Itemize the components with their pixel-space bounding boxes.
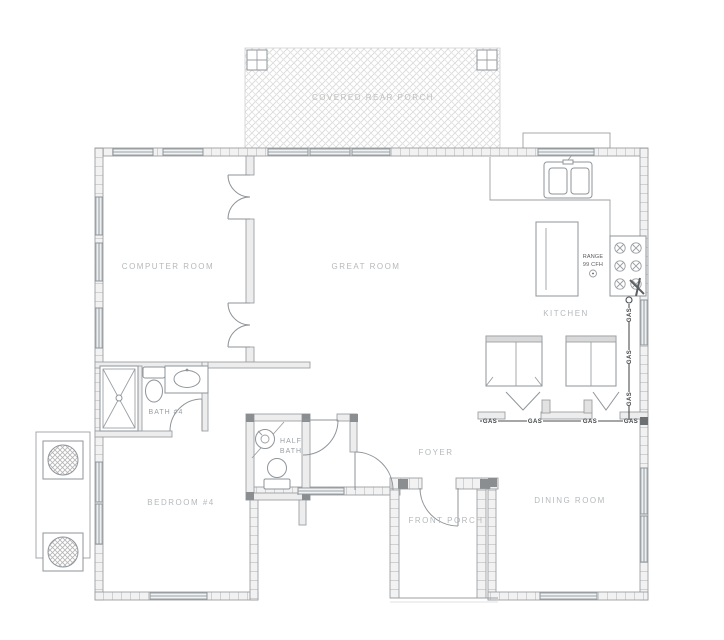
wall-dining-left bbox=[488, 487, 496, 600]
window bbox=[95, 462, 103, 502]
porch-wall-right bbox=[477, 489, 486, 598]
vanity-bath4 bbox=[165, 366, 208, 393]
computer-room-label: COMPUTER ROOM bbox=[122, 262, 214, 271]
gas-label: GAS bbox=[528, 419, 542, 425]
gas-label: GAS bbox=[624, 419, 638, 425]
hvac-unit-2 bbox=[43, 533, 83, 571]
covered-rear-porch-label: COVERED REAR PORCH bbox=[312, 93, 434, 102]
gas-label: GAS bbox=[483, 419, 497, 425]
range: RANGE 99 CFH bbox=[583, 236, 646, 296]
computer-room-double-door-top bbox=[228, 175, 250, 219]
hvac-units bbox=[36, 432, 90, 571]
window bbox=[540, 592, 597, 600]
gas-label: GAS bbox=[627, 350, 633, 364]
window bbox=[640, 516, 648, 562]
gas-label: GAS bbox=[627, 308, 633, 322]
dining-opening-right bbox=[593, 392, 619, 410]
bath4-label: BATH #4 bbox=[149, 409, 184, 416]
foyer-hall-door bbox=[355, 452, 393, 490]
window bbox=[640, 468, 648, 514]
window bbox=[150, 592, 207, 600]
cabinet-right bbox=[566, 336, 616, 386]
kitchen-label: KITCHEN bbox=[543, 309, 589, 318]
window bbox=[95, 308, 103, 348]
range-label-2: 99 CFH bbox=[583, 262, 603, 268]
toilet-bath4 bbox=[143, 367, 165, 402]
half-bath-label-2: BATH bbox=[280, 448, 302, 455]
covered-rear-porch: COVERED REAR PORCH bbox=[245, 48, 500, 148]
window bbox=[538, 148, 594, 156]
kitchen-island bbox=[536, 222, 578, 296]
hvac-unit-1 bbox=[43, 441, 83, 479]
porch-post-left bbox=[247, 50, 267, 70]
range-label-1: RANGE bbox=[583, 254, 604, 260]
window bbox=[268, 148, 308, 156]
window bbox=[298, 487, 344, 495]
front-post-left bbox=[398, 479, 408, 489]
window bbox=[95, 504, 103, 544]
wall-bedroom-right bbox=[250, 495, 258, 600]
dining-opening-left bbox=[506, 392, 540, 410]
window bbox=[95, 243, 103, 281]
window bbox=[113, 148, 153, 156]
half-bath-label-1: HALF bbox=[280, 438, 302, 445]
cabinet-left bbox=[486, 336, 542, 386]
bath4-fixtures bbox=[100, 366, 208, 431]
porch-post-right bbox=[477, 50, 497, 70]
floor-plan-page: COVERED REAR PORCH bbox=[0, 0, 724, 640]
kitchen-window-box bbox=[523, 133, 610, 148]
kitchen-fixtures: RANGE 99 CFH bbox=[486, 155, 646, 386]
window bbox=[640, 300, 648, 345]
interior-walls bbox=[95, 156, 648, 525]
window bbox=[310, 148, 350, 156]
dining-room-label: DINING ROOM bbox=[534, 496, 606, 505]
front-porch bbox=[390, 478, 498, 602]
window bbox=[352, 148, 390, 156]
great-room-label: GREAT ROOM bbox=[332, 262, 401, 271]
kitchen-sink bbox=[544, 155, 592, 198]
gas-label: GAS bbox=[627, 392, 633, 406]
porch-wall-left bbox=[390, 489, 399, 598]
front-porch-label: FRONT PORCH bbox=[408, 516, 483, 525]
half-bath-fixtures bbox=[252, 422, 290, 489]
floor-plan-drawing: COVERED REAR PORCH bbox=[0, 0, 724, 640]
window bbox=[95, 197, 103, 235]
gas-label: GAS bbox=[583, 419, 597, 425]
bedroom4-label: BEDROOM #4 bbox=[147, 498, 214, 507]
shower bbox=[100, 366, 138, 431]
window bbox=[163, 148, 203, 156]
computer-room-double-door-bottom bbox=[228, 303, 250, 347]
toilet-half-bath bbox=[264, 459, 290, 490]
foyer-label: FOYER bbox=[418, 448, 453, 457]
